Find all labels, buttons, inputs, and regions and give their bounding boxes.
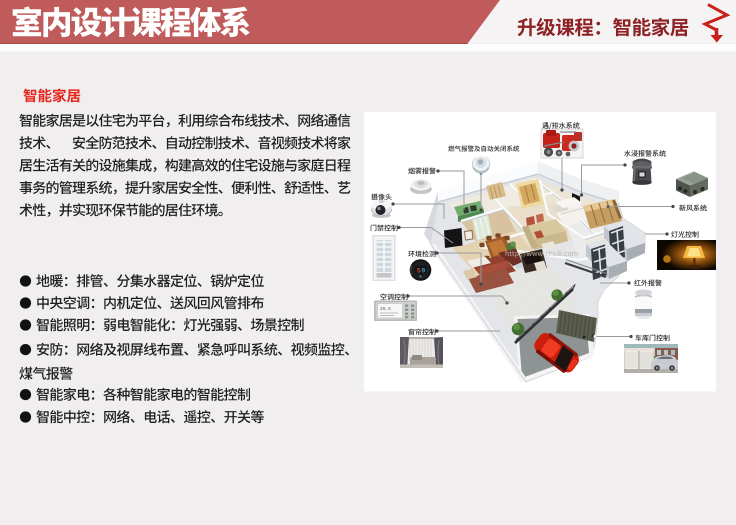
svg-text:5: 5 (417, 268, 421, 275)
svg-text:26.5: 26.5 (380, 306, 391, 312)
svg-text:9: 9 (422, 268, 426, 275)
